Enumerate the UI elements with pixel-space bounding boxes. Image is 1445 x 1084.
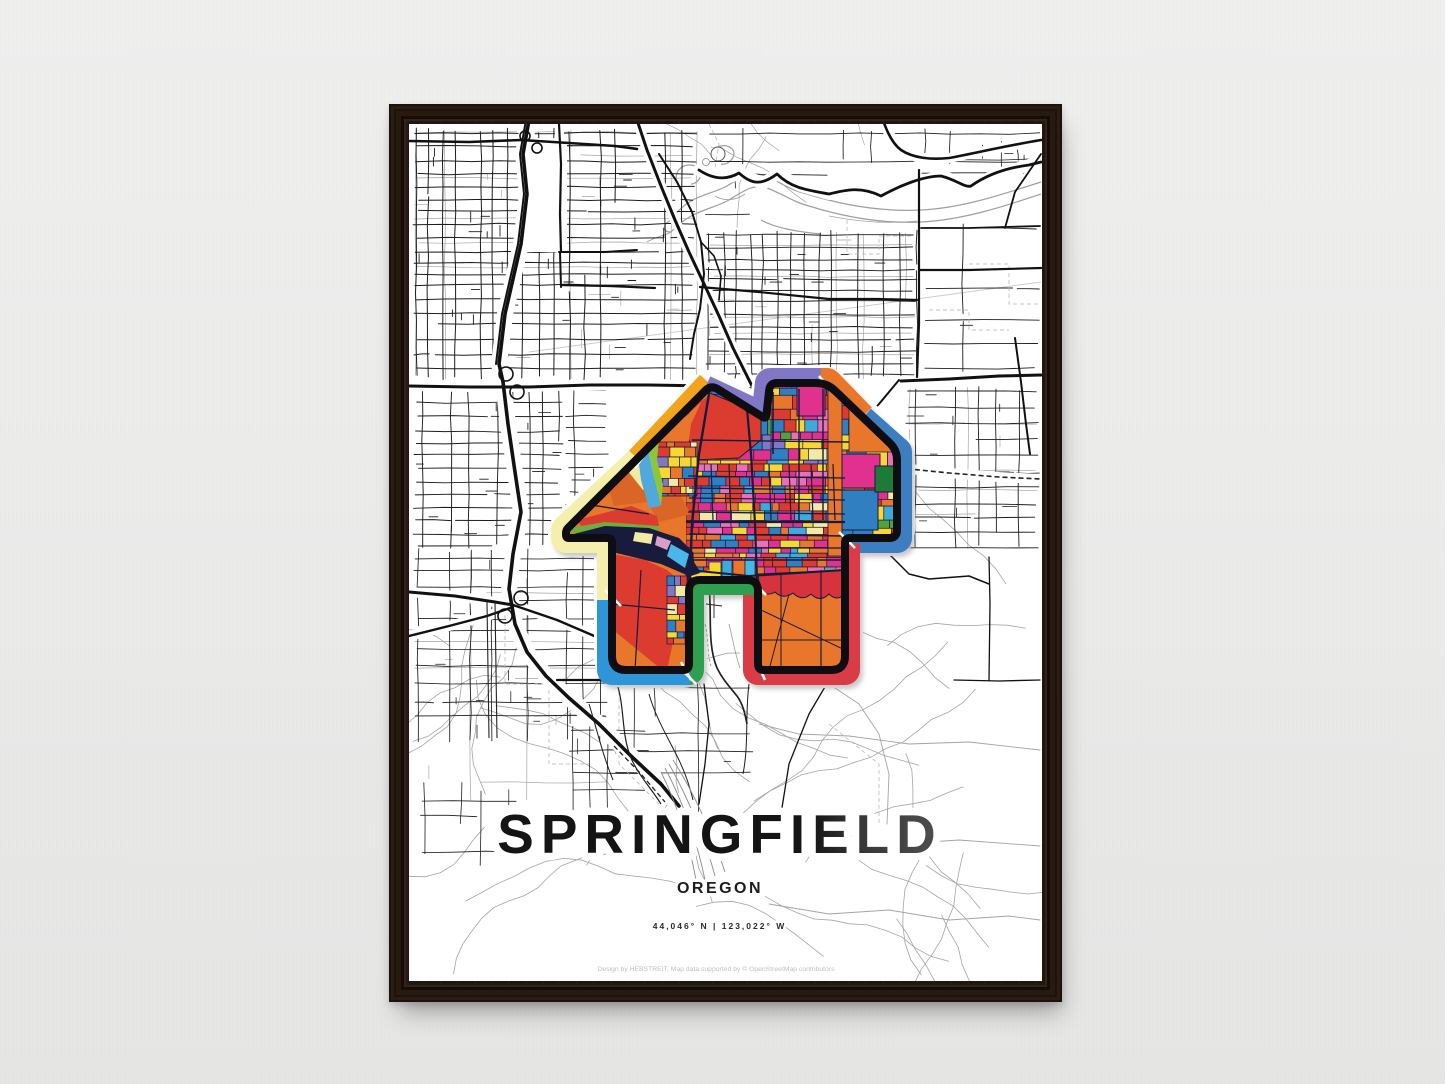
svg-text:44,046° N | 123,022° W: 44,046° N | 123,022° W [653,921,787,931]
svg-text:OREGON: OREGON [677,880,763,897]
svg-text:Design by HEBSTREIT, Map data: Design by HEBSTREIT, Map data supported … [598,965,836,973]
svg-text:SPRINGFIELD: SPRINGFIELD [497,803,942,865]
